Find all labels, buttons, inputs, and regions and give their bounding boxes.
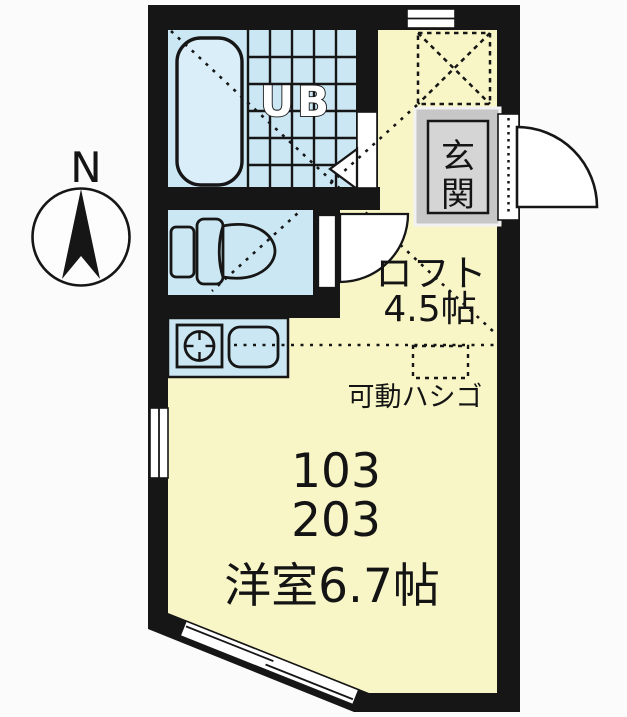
bathtub-icon (177, 38, 242, 185)
entrance-label-char2: 関 (441, 175, 475, 215)
room-number-203: 203 (291, 493, 381, 548)
wall-toilet-kitchen (148, 295, 340, 318)
toilet-door-leaf (318, 215, 336, 288)
north-label: N (70, 143, 101, 192)
wall-bath-toilet (148, 187, 380, 210)
floor-plan: 玄 関 N UB ロフト 4.5帖 可動ハシゴ (0, 0, 627, 717)
left-window (150, 408, 168, 478)
main-room-label: 洋室6.7帖 (224, 559, 440, 614)
room-number-103: 103 (291, 444, 381, 499)
unit-bath-label: UB (260, 77, 332, 126)
toilet-floor (168, 210, 313, 295)
loft-size-label: 4.5帖 (383, 289, 476, 330)
entrance-label-char1: 玄 (441, 137, 475, 177)
top-window (407, 9, 455, 28)
ladder-label: 可動ハシゴ (348, 382, 483, 413)
